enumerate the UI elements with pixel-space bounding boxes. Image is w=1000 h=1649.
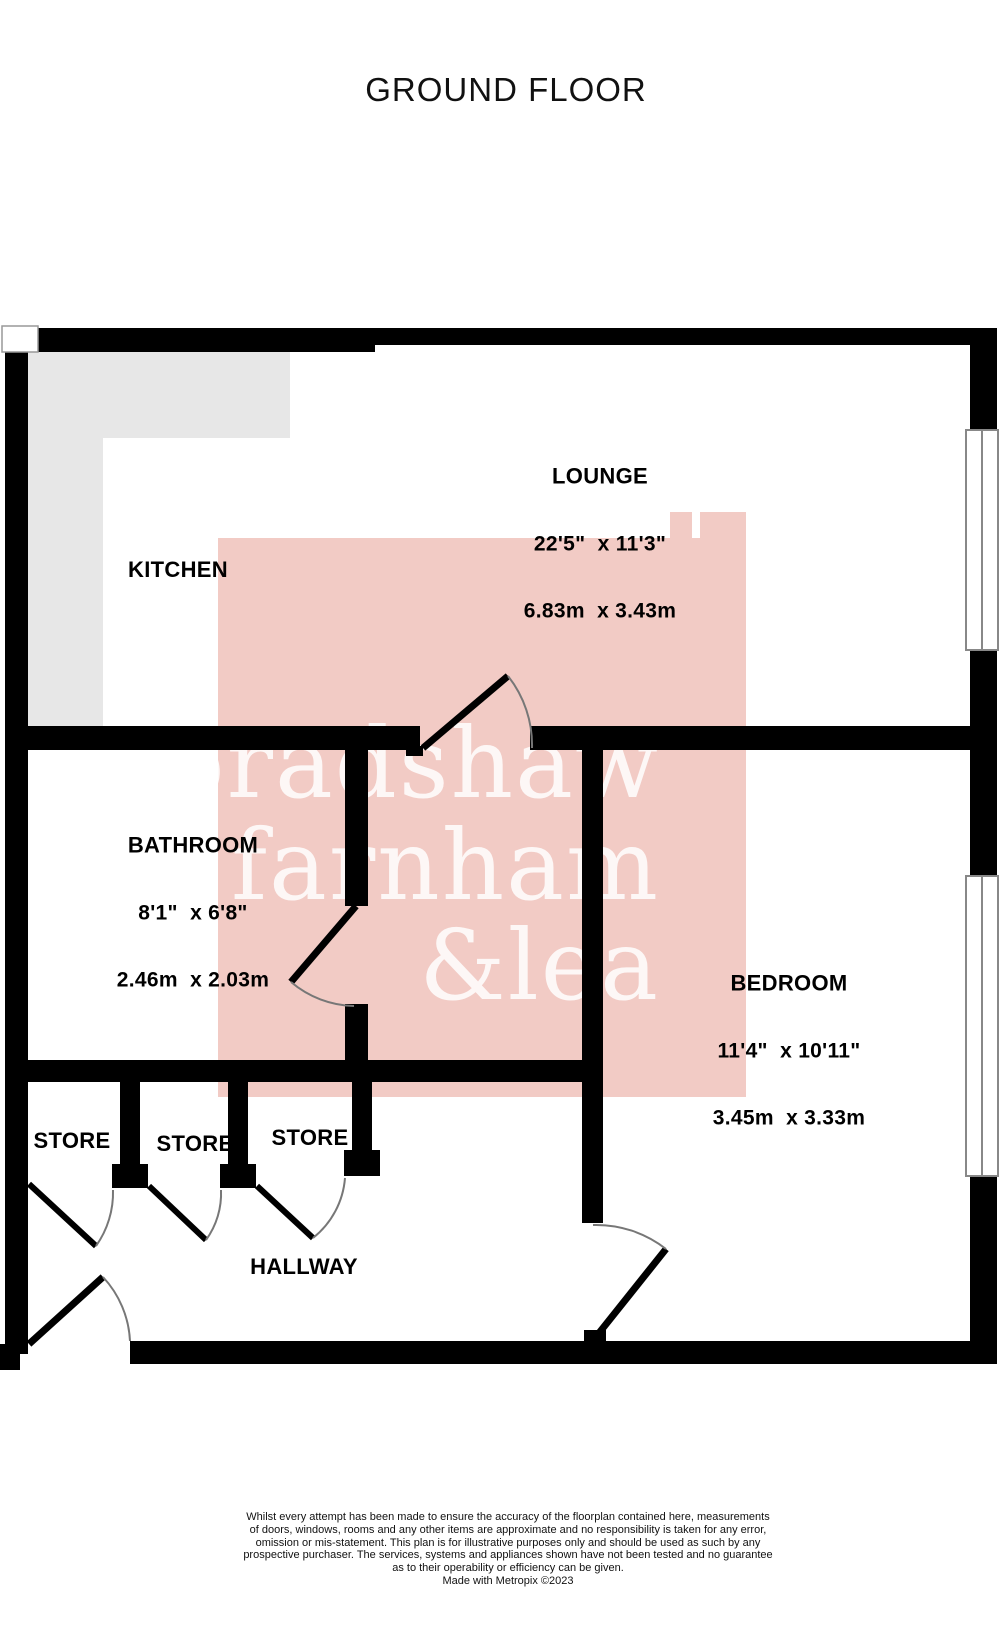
wall-lounge-bedroom-horizontal (530, 726, 970, 750)
lounge-dimensions-imperial: 22'5" x 11'3" (524, 533, 676, 556)
lounge-label: LOUNGE 22'5" x 11'3" 6.83m x 3.43m (524, 420, 676, 668)
wall-kitchen-bathroom (5, 726, 420, 750)
outer-wall-top-left (5, 328, 375, 352)
store-3-door-leaf (257, 1186, 313, 1238)
bedroom-door-leaf (595, 1249, 666, 1338)
outer-wall-top-right (375, 328, 997, 345)
store-3-right-wall-foot (344, 1150, 380, 1176)
floorplan-canvas: bradshaw farnham &lea (0, 0, 1000, 1649)
entrance-door (29, 1277, 130, 1344)
store-divider-1 (120, 1080, 140, 1168)
disclaimer: Whilst every attempt has been made to en… (8, 1511, 1000, 1588)
store-3-label: STORE (272, 1127, 349, 1150)
entrance-door-arc (103, 1277, 130, 1341)
store-1-label: STORE (34, 1130, 111, 1153)
store-1-door-leaf (29, 1184, 96, 1246)
store-2-door-leaf (149, 1186, 206, 1240)
outer-wall-right-middle (970, 648, 997, 878)
hallway-label: HALLWAY (250, 1256, 358, 1279)
lounge-name: LOUNGE (524, 465, 676, 488)
entrance-door-leaf (29, 1277, 103, 1344)
store-1-door (29, 1184, 113, 1246)
watermark-line-3: &lea (419, 909, 660, 1022)
store-2-door (149, 1186, 221, 1240)
outer-wall-left (5, 328, 28, 1354)
wall-store-top (5, 1060, 586, 1082)
store-1-door-arc (96, 1190, 113, 1246)
bathroom-dimensions-metric: 2.46m x 2.03m (117, 969, 269, 992)
disclaimer-line: as to their operability or efficiency ca… (8, 1562, 1000, 1575)
bathroom-label: BATHROOM 8'1" x 6'8" 2.46m x 2.03m (117, 789, 269, 1037)
metropix-credit: Made with Metropix ©2023 (8, 1575, 1000, 1588)
bathroom-dimensions-imperial: 8'1" x 6'8" (117, 902, 269, 925)
disclaimer-line: Whilst every attempt has been made to en… (8, 1511, 1000, 1524)
bedroom-window (966, 876, 998, 1176)
disclaimer-line: omission or mis-statement. This plan is … (8, 1537, 1000, 1550)
store-3-door (257, 1178, 345, 1238)
kitchen-counter-left (28, 352, 103, 726)
top-left-wall-notch (2, 326, 38, 352)
kitchen-label: KITCHEN (128, 559, 228, 582)
page-title: GROUND FLOOR (6, 71, 1000, 109)
outer-wall-right-upper (970, 328, 997, 432)
store-3-door-arc (313, 1178, 345, 1238)
disclaimer-line: of doors, windows, rooms and any other i… (8, 1524, 1000, 1537)
bathroom-name: BATHROOM (117, 834, 269, 857)
wall-bathroom-right-stub (345, 1004, 368, 1062)
lounge-dimensions-metric: 6.83m x 3.43m (524, 600, 676, 623)
wall-hallway-bedroom-vertical (582, 748, 603, 1223)
store-3-right-wall (352, 1080, 372, 1154)
outer-wall-bottom (130, 1341, 997, 1364)
store-divider-2-foot (220, 1164, 256, 1188)
store-2-door-arc (206, 1190, 221, 1240)
outer-wall-left-foot (0, 1344, 20, 1370)
bedroom-label: BEDROOM 11'4" x 10'11" 3.45m x 3.33m (713, 927, 865, 1175)
bedroom-door-arc (593, 1225, 666, 1249)
store-2-label: STORE (157, 1133, 234, 1156)
bedroom-dimensions-metric: 3.45m x 3.33m (713, 1107, 865, 1130)
kitchen-door-hinge-block (406, 746, 423, 756)
bedroom-dimensions-imperial: 11'4" x 10'11" (713, 1040, 865, 1063)
disclaimer-line: prospective purchaser. The services, sys… (8, 1549, 1000, 1562)
wall-bathroom-right (345, 748, 368, 906)
store-divider-1-foot (112, 1164, 148, 1188)
outer-wall-right-lower (970, 1174, 997, 1364)
bedroom-door (593, 1225, 666, 1338)
lounge-window (966, 430, 998, 650)
bedroom-name: BEDROOM (713, 972, 865, 995)
